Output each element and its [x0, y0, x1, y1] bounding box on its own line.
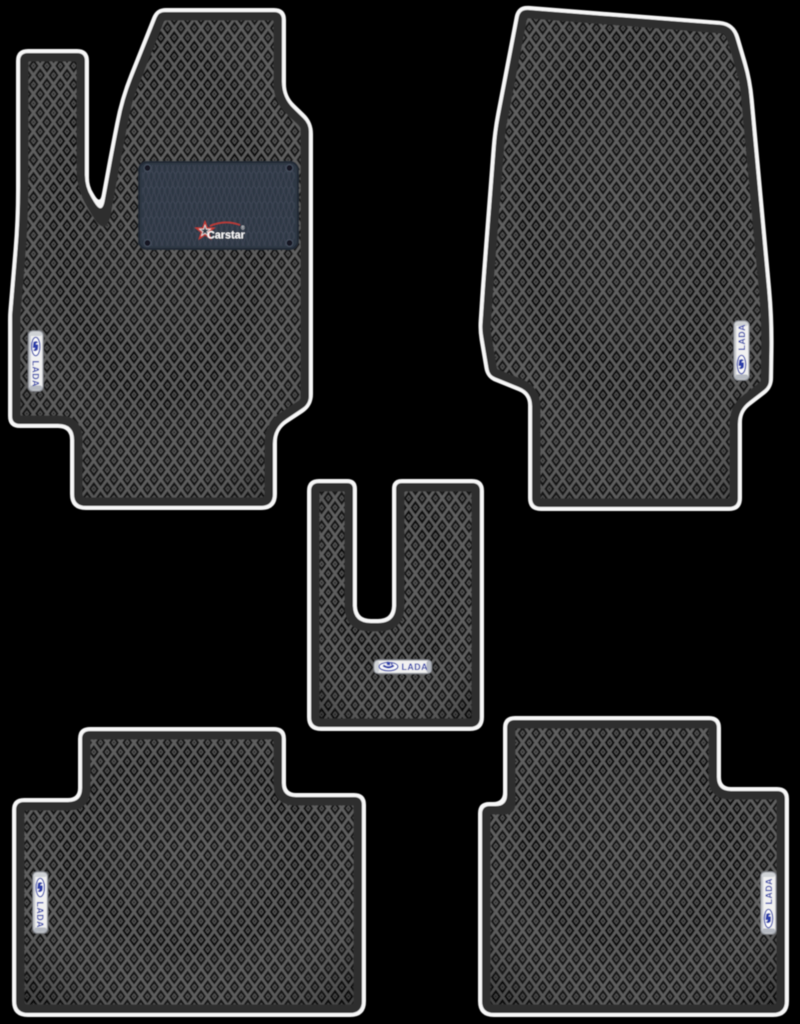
svg-text:LADA: LADA	[764, 878, 774, 905]
svg-text:Carstar: Carstar	[207, 230, 246, 242]
svg-text:LADA: LADA	[30, 361, 40, 388]
svg-text:LADA: LADA	[737, 324, 747, 351]
svg-text:®: ®	[241, 225, 245, 232]
svg-text:LADA: LADA	[402, 662, 429, 672]
svg-text:LADA: LADA	[35, 902, 45, 929]
